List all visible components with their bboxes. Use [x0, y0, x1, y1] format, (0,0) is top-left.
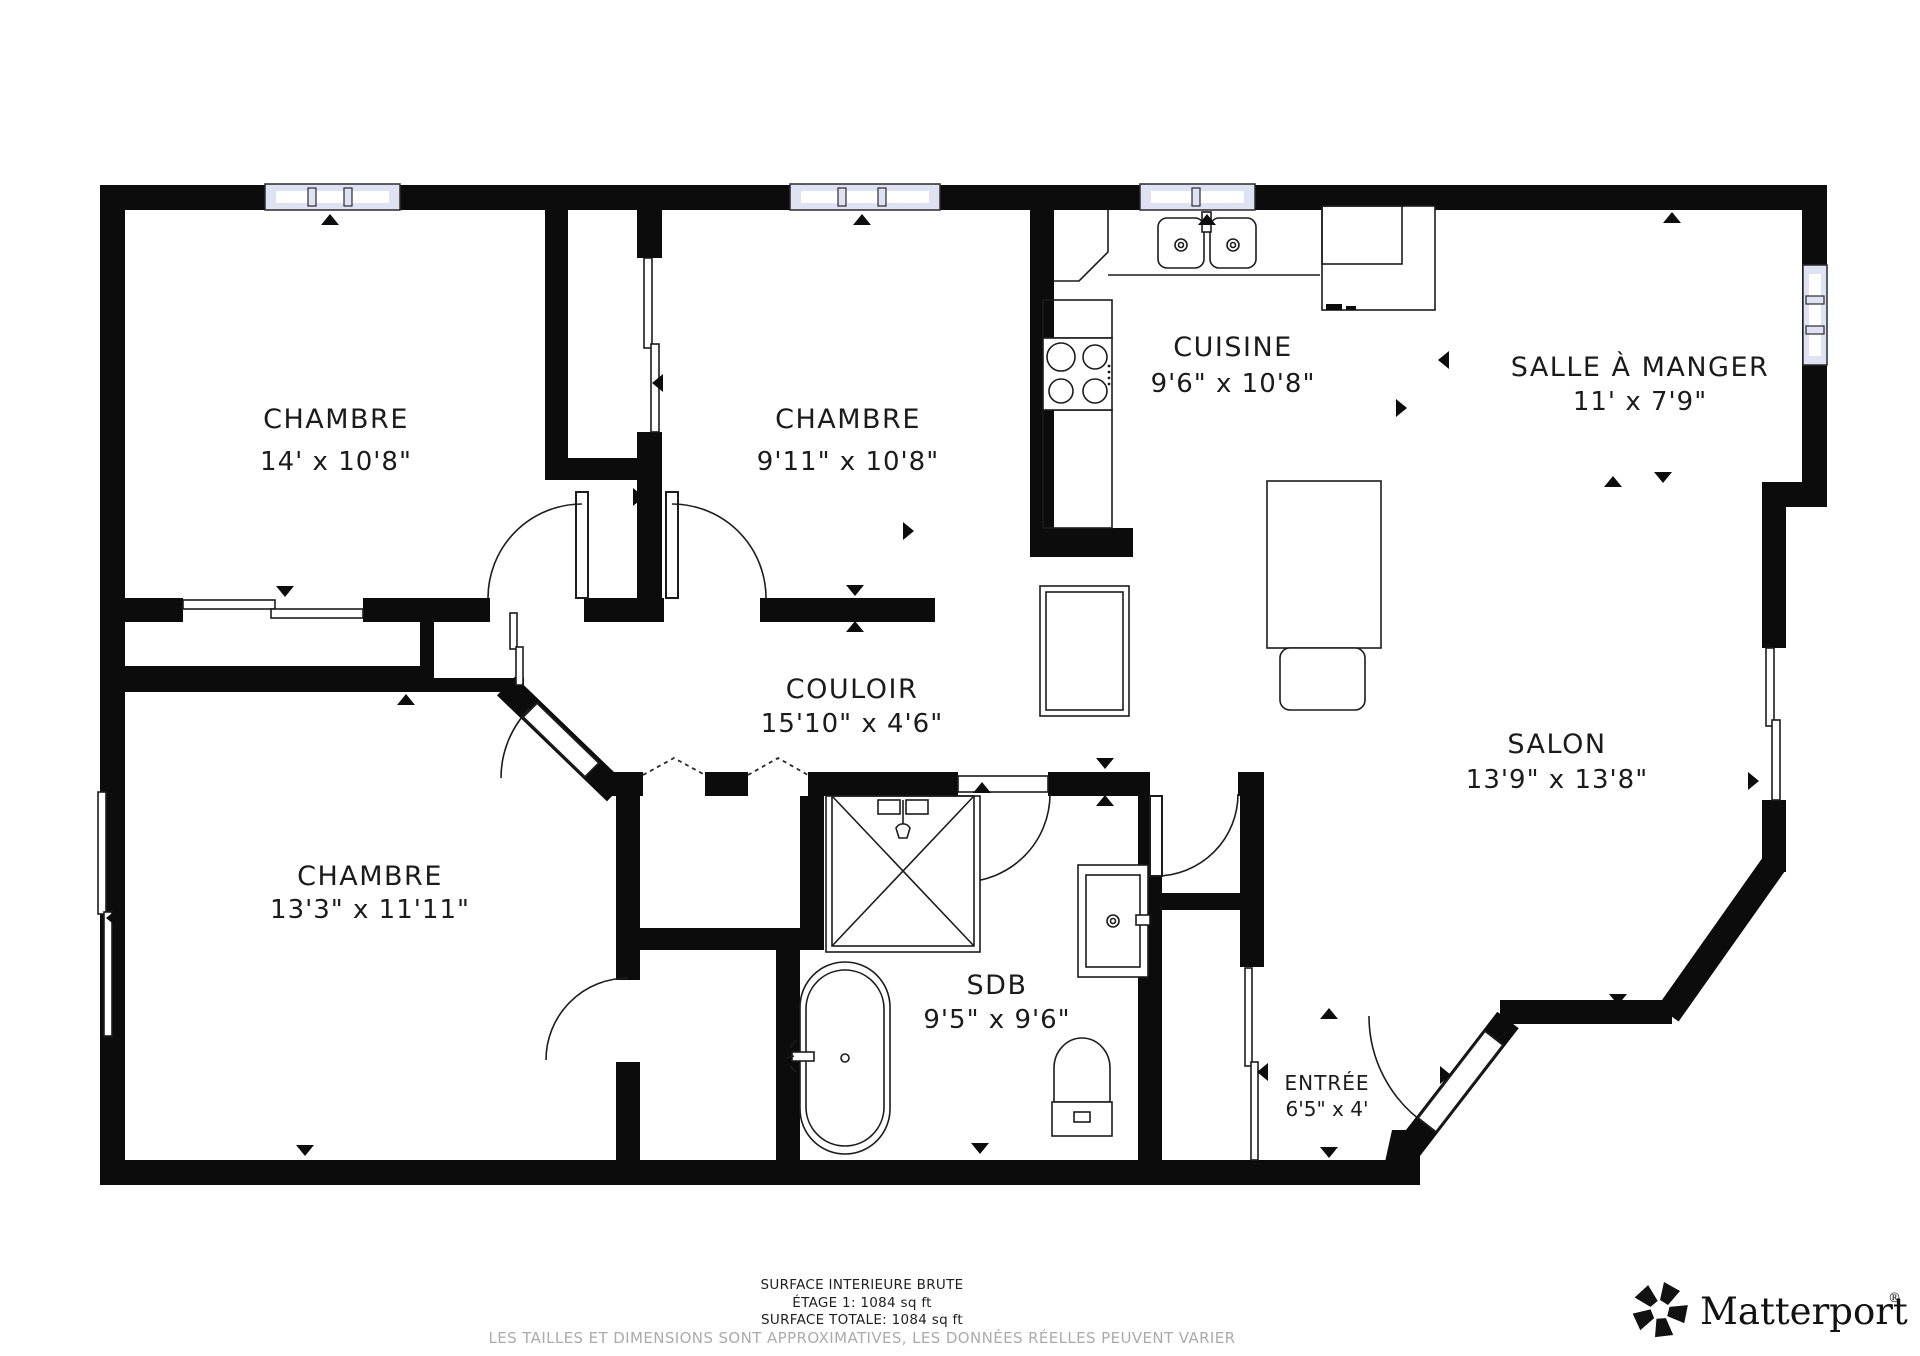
vanity-sink-icon [1078, 865, 1150, 977]
door-bedroom-3-diagonal [501, 703, 599, 778]
label-bedroom-2-dims: 9'11" x 10'8" [757, 447, 939, 477]
stove-icon [1043, 338, 1112, 410]
door-bedroom-3-closet [546, 978, 628, 1060]
footer: SURFACE INTERIEURE BRUTE ÉTAGE 1: 1084 s… [489, 1277, 1236, 1347]
footer-disclaimer: LES TAILLES ET DIMENSIONS SONT APPROXIMA… [489, 1328, 1236, 1347]
footer-surface-totale: SURFACE TOTALE: 1084 sq ft [761, 1312, 963, 1328]
window-bedroom-2 [790, 184, 940, 210]
label-kitchen-name: CUISINE [1173, 332, 1292, 363]
toilet-icon [1052, 1038, 1112, 1136]
bathtub-icon [786, 962, 890, 1154]
label-hallway-name: COULOIR [786, 674, 918, 705]
matterport-logo: Matterport ® [1627, 1282, 1908, 1344]
label-hallway-dims: 15'10" x 4'6" [761, 709, 943, 739]
floorplan-page: CHAMBRE 14' x 10'8" CHAMBRE 9'11" x 10'8… [0, 0, 1920, 1356]
label-dining-name: SALLE À MANGER [1511, 351, 1770, 383]
refrigerator-icon [1322, 206, 1435, 310]
door-hall-closet [1150, 794, 1238, 876]
door-bedroom-2 [666, 492, 766, 598]
window-bedroom-1 [265, 184, 400, 210]
label-dining-dims: 11' x 7'9" [1573, 387, 1707, 417]
matterport-wordmark: Matterport [1700, 1290, 1908, 1333]
sliding-door-entry-closet [1245, 968, 1258, 1160]
label-bedroom-2-name: CHAMBRE [775, 404, 921, 435]
label-bedroom-1-dims: 14' x 10'8" [260, 447, 412, 477]
island-table-icon [1267, 481, 1381, 710]
footer-etage: ÉTAGE 1: 1084 sq ft [792, 1294, 932, 1311]
door-bedroom-1 [488, 492, 588, 598]
label-entry-dims: 6'5" x 4' [1286, 1097, 1369, 1121]
window-dining-room [1803, 265, 1827, 365]
label-bathroom-name: SDB [967, 970, 1028, 1001]
sliding-door-closet-bedroom2 [644, 258, 659, 432]
kitchen-fixtures [1040, 206, 1435, 716]
sliding-door-bedroom1-closet [183, 600, 363, 618]
floorplan-drawing: CHAMBRE 14' x 10'8" CHAMBRE 9'11" x 10'8… [0, 0, 1920, 1356]
sliding-door-hall-cell [510, 613, 523, 685]
label-living-name: SALON [1507, 729, 1606, 760]
label-bedroom-1-name: CHAMBRE [263, 404, 409, 435]
window-kitchen [1140, 184, 1255, 210]
pantry-cabinet-icon [1040, 586, 1129, 716]
registered-mark: ® [1888, 1291, 1901, 1306]
shower-icon [826, 796, 980, 952]
label-bedroom-3-dims: 13'3" x 11'11" [270, 895, 470, 925]
label-kitchen-dims: 9'6" x 10'8" [1151, 369, 1316, 399]
label-bedroom-3-name: CHAMBRE [297, 861, 443, 892]
window-living-room [1766, 648, 1780, 800]
label-bathroom-dims: 9'5" x 9'6" [923, 1005, 1070, 1035]
footer-surface-brute: SURFACE INTERIEURE BRUTE [761, 1277, 964, 1293]
label-entry-name: ENTRÉE [1285, 1071, 1370, 1095]
matterport-pinwheel-icon [1627, 1282, 1692, 1344]
label-living-dims: 13'9" x 13'8" [1466, 765, 1648, 795]
